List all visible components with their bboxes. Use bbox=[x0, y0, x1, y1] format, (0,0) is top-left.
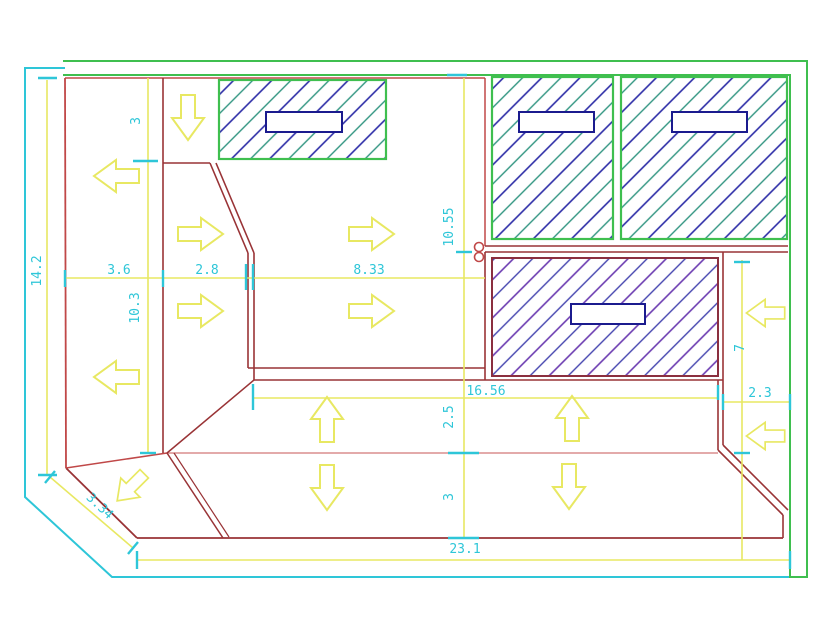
slope-arrow-down bbox=[553, 464, 585, 509]
slope-arrow-right bbox=[349, 218, 394, 250]
slope-arrow-left bbox=[94, 160, 139, 192]
hip-line-a bbox=[66, 453, 167, 468]
dim-text-3-upper: 3 bbox=[129, 117, 144, 125]
dim-text-16-56: 16.56 bbox=[466, 384, 505, 399]
slope-arrow-down bbox=[311, 465, 343, 510]
hip-line-b1 bbox=[167, 453, 223, 538]
slope-arrow-right bbox=[349, 295, 394, 327]
slope-arrow-right bbox=[178, 295, 223, 327]
pipe-marker-icon bbox=[475, 253, 484, 262]
dim-text-3-6: 3.6 bbox=[107, 263, 130, 278]
slope-arrow-right bbox=[178, 218, 223, 250]
label-box bbox=[519, 112, 594, 132]
dim-text-2-8: 2.8 bbox=[195, 263, 218, 278]
label-box bbox=[571, 304, 645, 324]
dim-line-3-34 bbox=[50, 477, 133, 548]
dim-text-3-34: 3.34 bbox=[83, 490, 116, 522]
hip-line-b2 bbox=[174, 453, 229, 537]
valley-diagonal-3 bbox=[167, 380, 254, 453]
slope-arrow-down-left bbox=[108, 464, 154, 510]
dim-text-10-55: 10.55 bbox=[442, 207, 457, 246]
hatched-area-top-mid bbox=[492, 77, 613, 239]
dim-text-2-3: 2.3 bbox=[748, 386, 771, 401]
dim-text-7: 7 bbox=[733, 344, 748, 352]
dim-text-14-2: 14.2 bbox=[30, 255, 45, 286]
cad-drawing-viewport: 3 3.6 2.8 8.33 14.2 10.3 10.55 16.56 2.5… bbox=[0, 0, 840, 630]
dim-text-8-33: 8.33 bbox=[353, 263, 384, 278]
slope-arrow-up bbox=[556, 396, 588, 441]
slope-arrow-left bbox=[94, 361, 139, 393]
slope-arrow-left bbox=[746, 422, 784, 449]
dim-text-3-lower: 3 bbox=[442, 493, 457, 501]
hip-line-c2 bbox=[723, 445, 788, 510]
dim-text-23-1: 23.1 bbox=[449, 542, 480, 557]
label-box bbox=[266, 112, 342, 132]
label-box bbox=[672, 112, 747, 132]
hip-line-c1 bbox=[718, 450, 783, 515]
pipe-marker-icon bbox=[475, 243, 484, 252]
hatched-area-top-right bbox=[621, 77, 787, 239]
cad-canvas: 3 3.6 2.8 8.33 14.2 10.3 10.55 16.56 2.5… bbox=[0, 0, 840, 630]
slope-arrow-left bbox=[746, 299, 784, 326]
dim-text-10-3: 10.3 bbox=[128, 292, 143, 323]
slope-arrow-up bbox=[311, 397, 343, 442]
dim-text-2-5: 2.5 bbox=[442, 405, 457, 428]
valley-diagonal-2 bbox=[216, 163, 254, 253]
slope-arrow-down bbox=[172, 95, 204, 140]
